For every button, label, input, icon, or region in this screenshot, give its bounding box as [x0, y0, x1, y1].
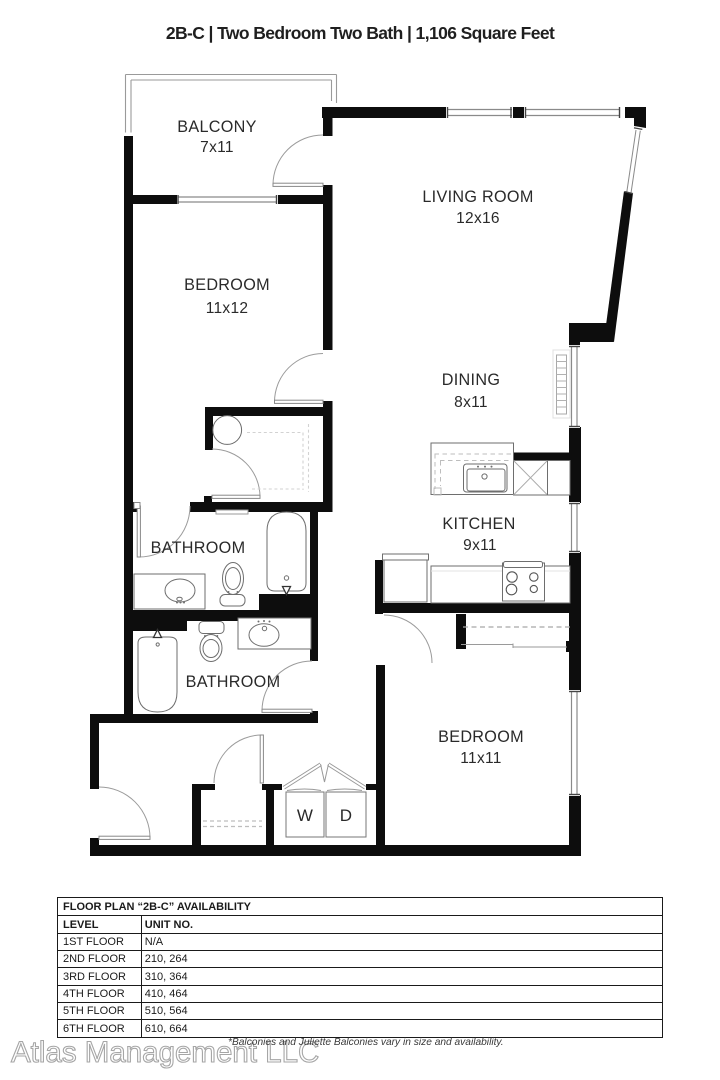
svg-text:BEDROOM: BEDROOM	[438, 728, 524, 746]
svg-text:DINING: DINING	[442, 371, 500, 389]
svg-text:KITCHEN: KITCHEN	[442, 515, 515, 533]
svg-text:11x12: 11x12	[206, 300, 249, 317]
svg-text:8x11: 8x11	[454, 394, 488, 411]
svg-text:W: W	[297, 806, 313, 825]
svg-text:BATHROOM: BATHROOM	[151, 539, 246, 557]
svg-text:12x16: 12x16	[456, 210, 500, 227]
svg-text:D: D	[340, 806, 353, 825]
svg-text:7x11: 7x11	[200, 139, 234, 156]
svg-text:11x11: 11x11	[460, 750, 501, 767]
svg-text:LIVING ROOM: LIVING ROOM	[422, 188, 533, 206]
svg-text:BATHROOM: BATHROOM	[186, 673, 281, 691]
svg-text:BALCONY: BALCONY	[177, 118, 256, 136]
svg-text:9x11: 9x11	[463, 537, 497, 554]
svg-text:BEDROOM: BEDROOM	[184, 276, 270, 294]
